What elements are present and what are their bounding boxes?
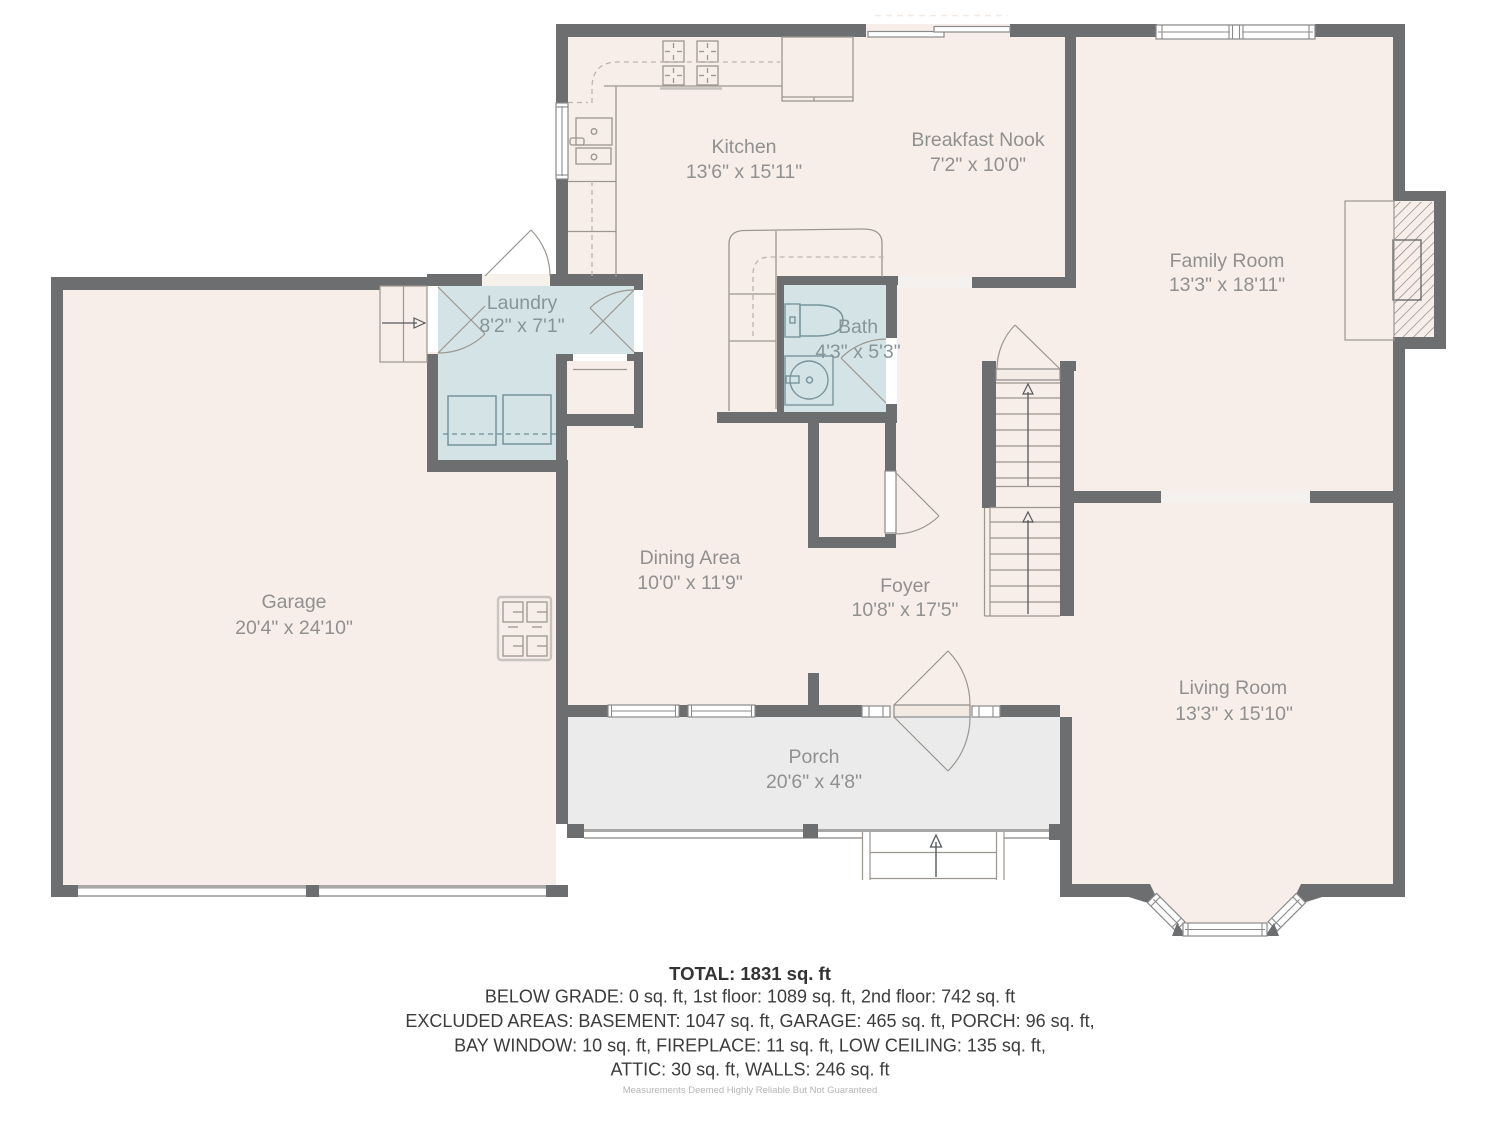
svg-text:13'3" x 18'11": 13'3" x 18'11" — [1169, 274, 1285, 296]
svg-text:Measurements Deemed Highly Rel: Measurements Deemed Highly Reliable But … — [623, 1085, 878, 1096]
svg-text:BELOW GRADE: 0 sq. ft, 1st flo: BELOW GRADE: 0 sq. ft, 1st floor: 1089 s… — [485, 987, 1015, 1007]
svg-text:Foyer: Foyer — [880, 575, 930, 597]
svg-text:10'8" x 17'5": 10'8" x 17'5" — [852, 599, 959, 621]
svg-text:Kitchen: Kitchen — [711, 136, 776, 158]
svg-text:Living Room: Living Room — [1179, 677, 1287, 699]
svg-text:8'2" x 7'1": 8'2" x 7'1" — [479, 315, 564, 337]
svg-text:Family Room: Family Room — [1170, 250, 1285, 272]
svg-text:20'4" x 24'10": 20'4" x 24'10" — [235, 617, 353, 639]
svg-text:Breakfast Nook: Breakfast Nook — [911, 129, 1045, 151]
svg-text:Bath: Bath — [838, 316, 878, 338]
svg-text:13'3" x 15'10": 13'3" x 15'10" — [1175, 703, 1293, 725]
svg-text:13'6" x 15'11": 13'6" x 15'11" — [686, 161, 802, 183]
svg-text:Dining Area: Dining Area — [640, 547, 741, 569]
svg-text:ATTIC: 30 sq. ft, WALLS: 246 s: ATTIC: 30 sq. ft, WALLS: 246 sq. ft — [610, 1060, 889, 1080]
svg-text:BAY WINDOW: 10 sq. ft, FIREPLA: BAY WINDOW: 10 sq. ft, FIREPLACE: 11 sq.… — [454, 1036, 1046, 1056]
svg-text:10'0" x 11'9": 10'0" x 11'9" — [637, 572, 743, 594]
svg-text:20'6" x 4'8": 20'6" x 4'8" — [766, 771, 862, 793]
svg-text:Garage: Garage — [261, 591, 326, 613]
svg-text:4'3" x 5'3": 4'3" x 5'3" — [815, 341, 900, 363]
svg-text:Laundry: Laundry — [487, 292, 558, 314]
svg-text:7'2" x 10'0": 7'2" x 10'0" — [930, 154, 1026, 176]
svg-text:EXCLUDED AREAS: BASEMENT: 1047: EXCLUDED AREAS: BASEMENT: 1047 sq. ft, G… — [405, 1011, 1094, 1031]
svg-text:TOTAL: 1831 sq. ft: TOTAL: 1831 sq. ft — [669, 963, 831, 984]
svg-text:Porch: Porch — [789, 746, 840, 768]
